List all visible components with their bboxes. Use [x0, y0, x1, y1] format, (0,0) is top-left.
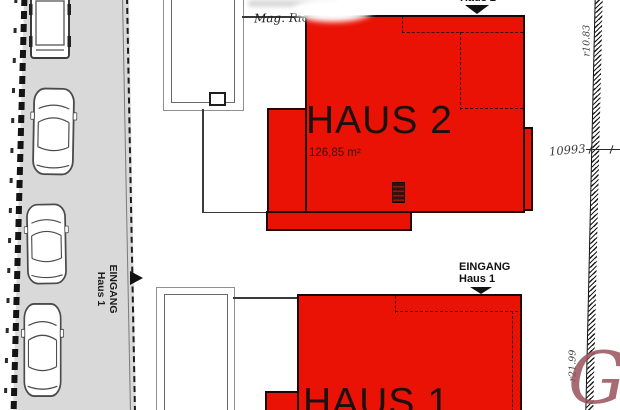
carport-haus1-inner	[164, 294, 228, 410]
road-entrance-label: EINGANG Haus 1	[95, 262, 119, 316]
haus2-dashed-line-4	[460, 108, 523, 109]
site-plan: HAUS 2 126,85 m² Haus 2 HAUS 1 EINGANG H…	[0, 0, 620, 410]
haus1-entrance-label: EINGANG Haus 1	[459, 261, 510, 285]
haus1-entrance-line2: Haus 1	[459, 273, 510, 285]
road-entrance-arrow-icon	[130, 271, 143, 285]
haus2-dashed-line-2	[402, 32, 523, 33]
haus1-dashed-line-3	[512, 311, 513, 410]
haus2-dashed-line-1	[402, 16, 403, 33]
haus2-dashed-line-3	[460, 32, 461, 110]
carport-haus2-notch	[209, 92, 226, 106]
road-entrance-line2: Haus 1	[95, 262, 107, 316]
connector-line-haus2-vertical	[202, 109, 204, 213]
haus2-entrance-label: Haus 2	[448, 0, 508, 4]
car-2-top-view	[23, 202, 69, 287]
haus2-left-annex	[267, 108, 307, 214]
haus1-left-annex	[265, 391, 301, 410]
stair-symbol-icon	[392, 182, 405, 203]
haus2-title: HAUS 2	[306, 99, 453, 143]
haus2-terrace	[266, 211, 412, 231]
car-3-top-view	[21, 301, 64, 399]
connector-line-haus1	[233, 297, 299, 299]
connector-line-haus2-horizontal	[202, 212, 268, 214]
car-1-top-view	[29, 86, 78, 178]
haus1-dashed-line-2	[395, 311, 518, 312]
haus2-area: 126,85 m²	[309, 147, 361, 159]
haus1-entrance-arrow-icon	[470, 287, 492, 294]
haus1-title: HAUS 1	[303, 381, 450, 410]
carport-haus2-inner	[171, 0, 235, 103]
van-top-view	[28, 0, 72, 62]
watermark-logo: G	[568, 348, 620, 408]
haus2-entrance-arrow-icon	[465, 5, 489, 14]
road-entrance-line1: EINGANG	[107, 262, 119, 316]
dimension-label-mid: 10993	[548, 141, 586, 158]
haus1-entrance-line1: EINGANG	[459, 261, 510, 273]
dimension-label-top: r10.83	[582, 27, 593, 57]
